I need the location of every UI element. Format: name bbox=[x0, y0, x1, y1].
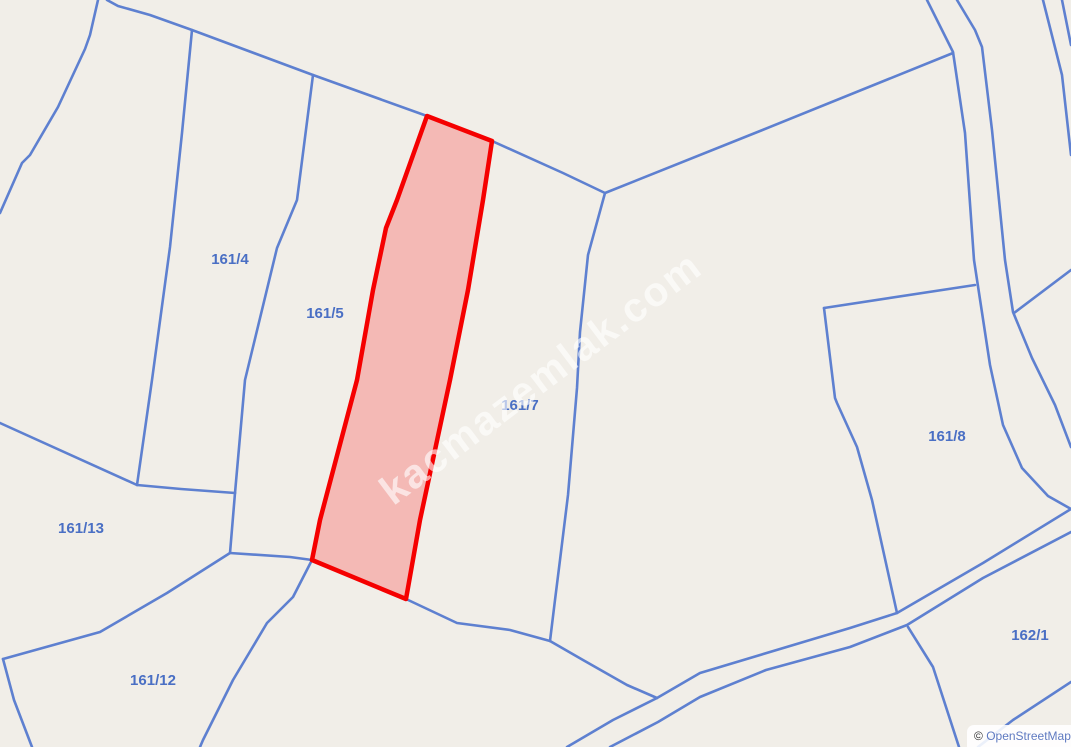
parcel-label-161-5: 161/5 bbox=[306, 305, 344, 322]
parcel-label-161-13: 161/13 bbox=[58, 520, 104, 537]
parcel-label-162-1: 162/1 bbox=[1011, 627, 1049, 644]
copyright-symbol: © bbox=[974, 729, 986, 743]
map-canvas[interactable]: 161/4 161/5 161/7 161/8 161/13 161/12 16… bbox=[0, 0, 1071, 747]
openstreetmap-attribution-link[interactable]: OpenStreetMap bbox=[986, 729, 1071, 743]
parcel-label-161-8: 161/8 bbox=[928, 428, 966, 445]
parcel-label-161-12: 161/12 bbox=[130, 672, 176, 689]
map-attribution: © OpenStreetMap bbox=[967, 725, 1071, 747]
parcel-label-161-4: 161/4 bbox=[211, 251, 249, 268]
map-container[interactable]: 161/4 161/5 161/7 161/8 161/13 161/12 16… bbox=[0, 0, 1071, 747]
